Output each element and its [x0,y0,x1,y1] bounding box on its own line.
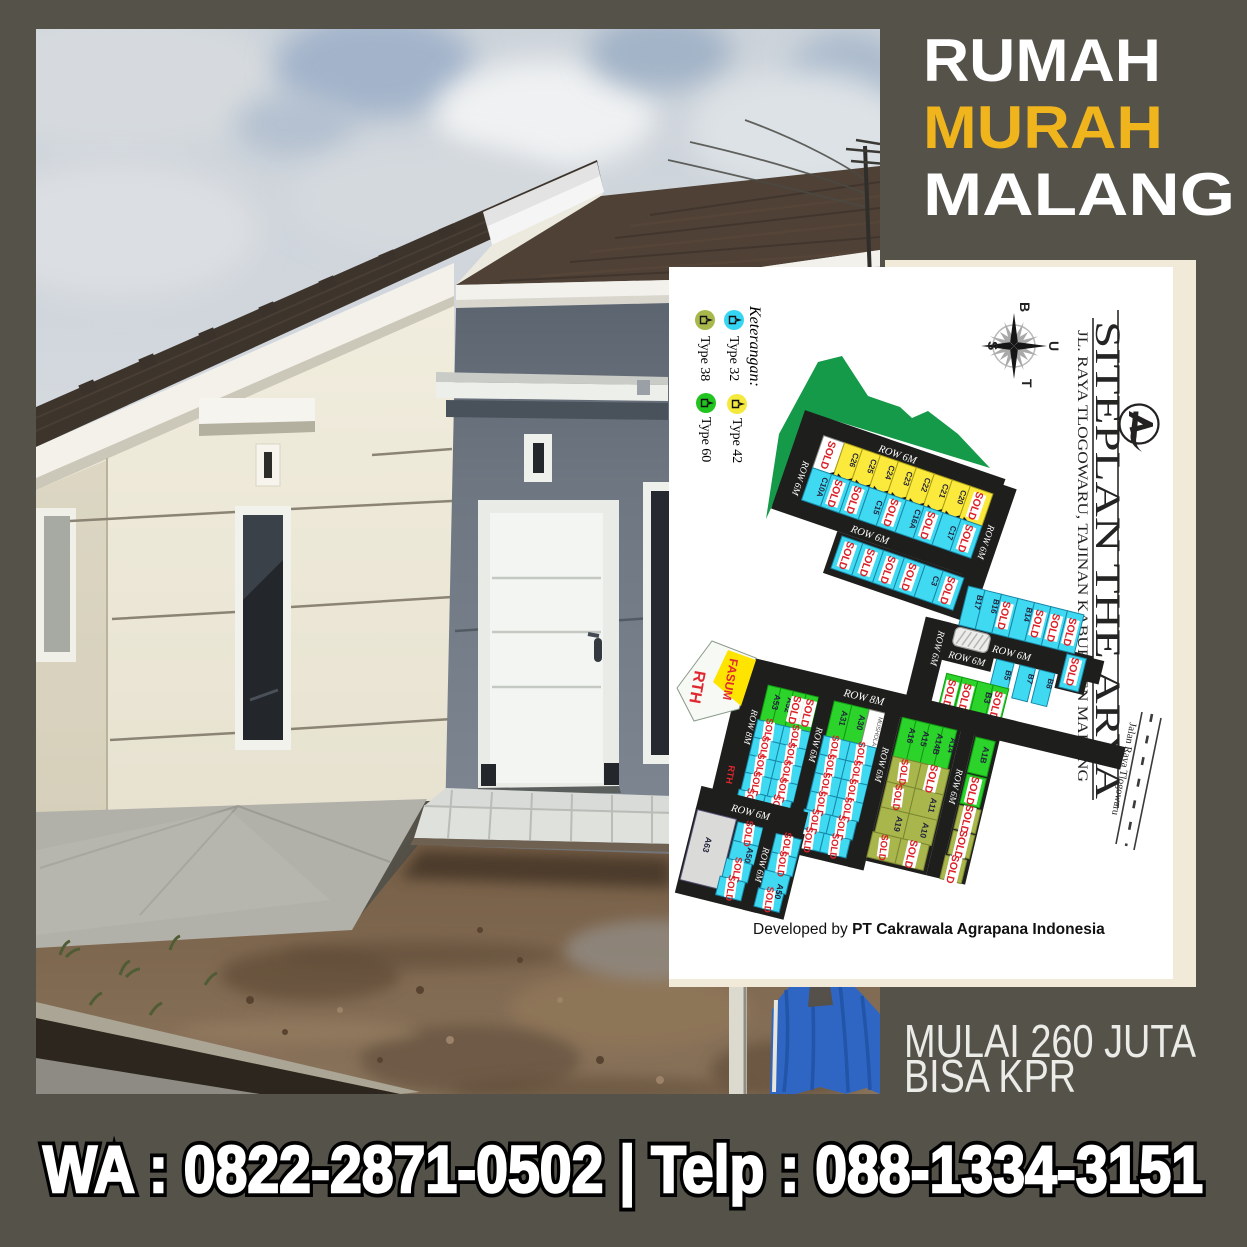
svg-text:MALANG: MALANG [923,161,1235,228]
svg-text:Type 38: Type 38 [697,336,712,381]
svg-text:SITEPLAN THE ARYA: SITEPLAN THE ARYA [1088,321,1128,799]
svg-text:U: U [1046,341,1062,351]
svg-text:T: T [1019,379,1035,388]
svg-text:JL. RAYA TLOGOWARU, TAJINAN KA: JL. RAYA TLOGOWARU, TAJINAN KABUPATEN MA… [1074,330,1090,783]
svg-text:BISA KPR: BISA KPR [904,1050,1076,1102]
svg-text:S: S [985,341,1001,350]
svg-text:Type 60: Type 60 [698,417,713,462]
svg-text:RUMAH: RUMAH [923,27,1161,94]
svg-text:MURAH: MURAH [923,94,1163,161]
svg-text:Type 32: Type 32 [726,336,741,381]
svg-text:B: B [1017,302,1033,312]
svg-text:Type 42: Type 42 [729,418,744,463]
svg-text:WA : 0822-2871-0502 | Telp : 0: WA : 0822-2871-0502 | Telp : 088-1334-31… [43,1132,1203,1208]
svg-text:Keterangan:: Keterangan: [746,305,763,387]
svg-text:Developed by PT Cakrawala Agra: Developed by PT Cakrawala Agrapana Indon… [753,921,1105,938]
